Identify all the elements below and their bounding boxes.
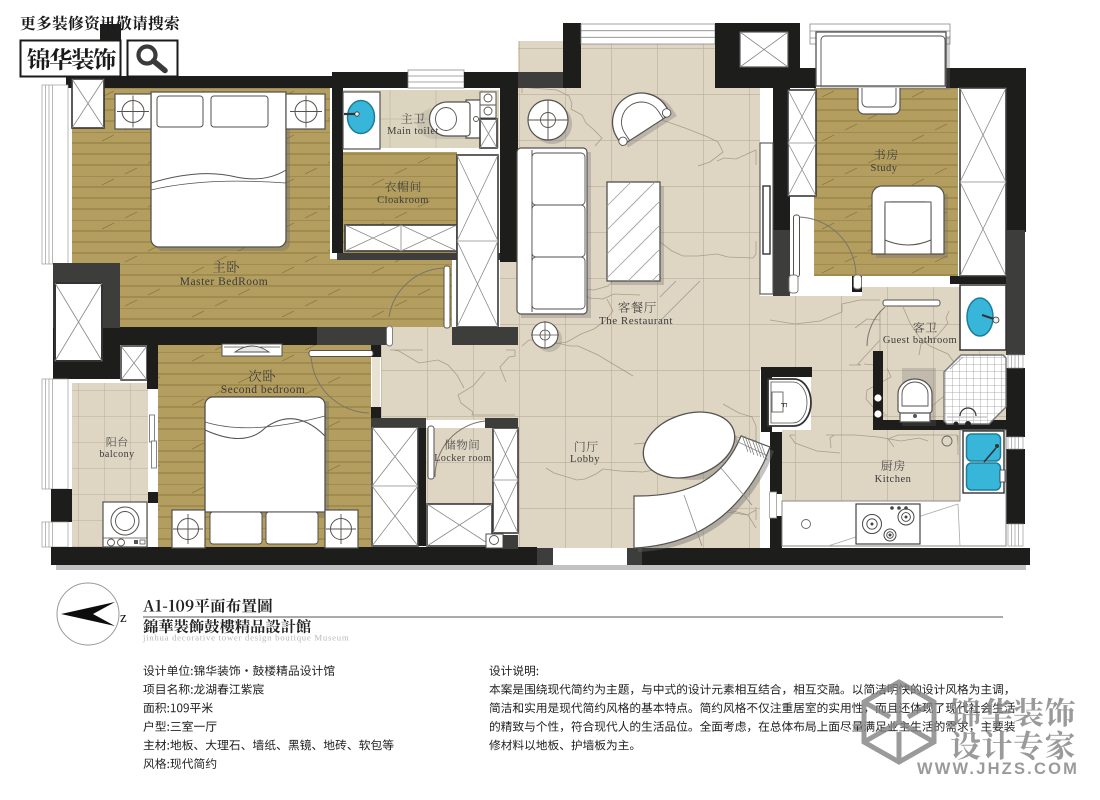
- svg-text:The Restaurant: The Restaurant: [599, 315, 673, 327]
- svg-text:Kitchen: Kitchen: [875, 474, 912, 485]
- svg-text:Main toilet: Main toilet: [387, 126, 439, 137]
- svg-text:Guest bathroom: Guest bathroom: [883, 335, 957, 346]
- svg-text:Master BedRoom: Master BedRoom: [180, 276, 268, 288]
- svg-text:z: z: [120, 610, 127, 626]
- svg-text:Second bedroom: Second bedroom: [221, 384, 306, 396]
- svg-text:Lobby: Lobby: [570, 454, 600, 465]
- svg-text:jinhua decorative tower design: jinhua decorative tower design boutique …: [142, 633, 349, 643]
- svg-text:Study: Study: [870, 163, 897, 174]
- svg-text:Cloakroom: Cloakroom: [377, 195, 429, 206]
- svg-text:balcony: balcony: [99, 449, 134, 460]
- svg-text:Locker room: Locker room: [434, 453, 491, 464]
- svg-text:F: F: [779, 403, 788, 408]
- svg-text:WWW.JHZS.COM: WWW.JHZS.COM: [917, 760, 1079, 778]
